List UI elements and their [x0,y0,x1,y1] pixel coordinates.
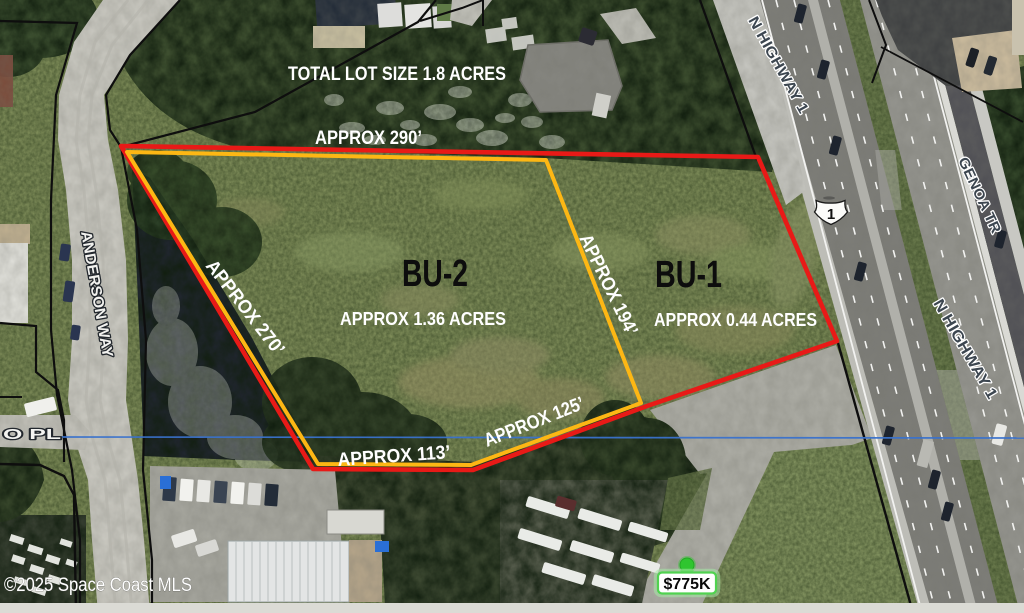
svg-text:$775K: $775K [664,576,712,593]
svg-text:APPROX 290’: APPROX 290’ [315,128,422,149]
svg-text:APPROX 0.44 ACRES: APPROX 0.44 ACRES [654,310,817,330]
svg-text:TOTAL LOT SIZE 1.8 ACRES: TOTAL LOT SIZE 1.8 ACRES [288,63,506,85]
svg-text:1: 1 [827,206,835,223]
svg-text:BU-2: BU-2 [402,253,468,295]
svg-text:©2025 Space Coast MLS: ©2025 Space Coast MLS [4,575,192,596]
svg-text:APPROX 1.36 ACRES: APPROX 1.36 ACRES [340,309,506,329]
svg-text:BU-1: BU-1 [655,254,722,296]
svg-text:O PL: O PL [3,426,61,443]
